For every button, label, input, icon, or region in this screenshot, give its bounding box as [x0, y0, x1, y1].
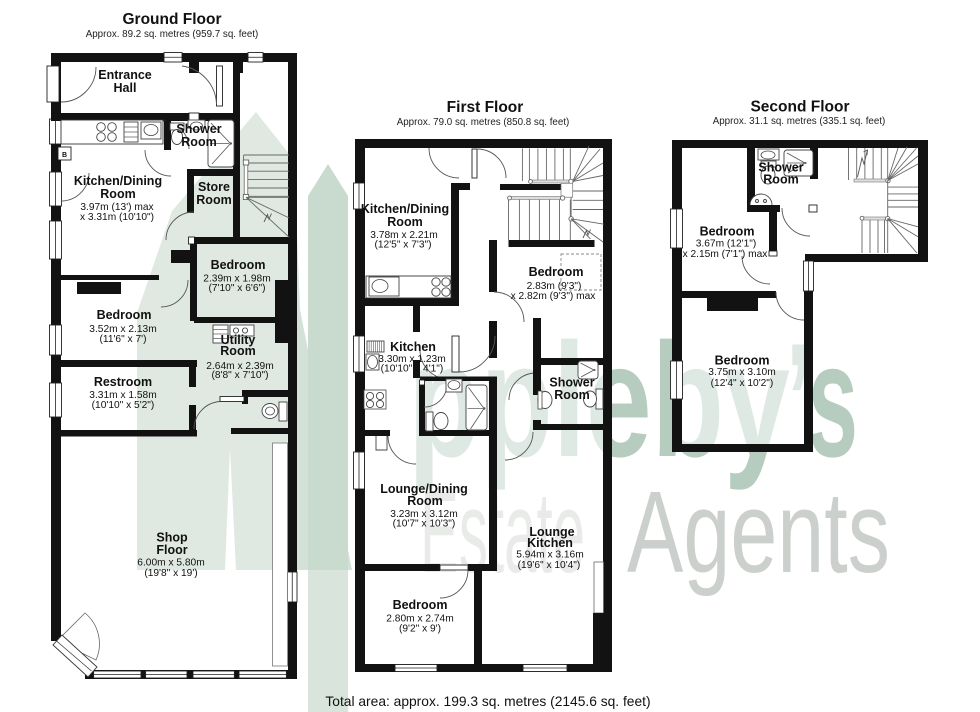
svg-text:Bedroom: Bedroom [529, 265, 584, 279]
svg-text:Kitchen: Kitchen [527, 536, 573, 550]
svg-text:x 2.15m (7'1") max: x 2.15m (7'1") max [683, 249, 768, 260]
svg-text:Shower: Shower [176, 122, 221, 136]
svg-text:Bedroom: Bedroom [97, 308, 152, 322]
svg-text:Bedroom: Bedroom [393, 598, 448, 612]
svg-text:(10'10" x 4'1"): (10'10" x 4'1") [381, 364, 444, 375]
svg-text:(12'5" x 7'3"): (12'5" x 7'3") [375, 240, 432, 251]
svg-text:Approx. 31.1 sq. metres (335.1: Approx. 31.1 sq. metres (335.1 sq. feet) [713, 116, 886, 127]
svg-text:x 2.82m (9'3") max: x 2.82m (9'3") max [511, 291, 596, 302]
svg-text:Entrance: Entrance [98, 68, 152, 82]
svg-text:Room: Room [196, 193, 231, 207]
svg-text:(11'6" x 7'): (11'6" x 7') [100, 334, 147, 345]
svg-text:Restroom: Restroom [94, 375, 152, 389]
svg-text:(8'8" x 7'10"): (8'8" x 7'10") [212, 370, 269, 381]
svg-text:Second Floor: Second Floor [750, 99, 849, 116]
svg-text:Agents: Agents [627, 467, 890, 597]
svg-text:(9'2" x 9'): (9'2" x 9') [399, 624, 441, 635]
svg-text:(7'10" x 6'6"): (7'10" x 6'6") [209, 283, 266, 294]
svg-text:Room: Room [554, 388, 589, 402]
svg-text:First Floor: First Floor [447, 99, 524, 116]
svg-text:Room: Room [387, 215, 422, 229]
svg-text:B: B [62, 152, 67, 159]
svg-text:Room: Room [220, 344, 255, 358]
svg-text:x 3.31m (10'10"): x 3.31m (10'10") [80, 212, 154, 223]
svg-text:Bedroom: Bedroom [211, 258, 266, 272]
svg-text:Hall: Hall [114, 81, 137, 95]
svg-text:Room: Room [181, 135, 216, 149]
svg-text:Room: Room [407, 494, 442, 508]
svg-text:Bedroom: Bedroom [715, 354, 770, 368]
svg-text:Approx. 79.0 sq. metres (850.8: Approx. 79.0 sq. metres (850.8 sq. feet) [397, 117, 570, 128]
svg-text:(12'4" x 10'2"): (12'4" x 10'2") [711, 378, 774, 389]
svg-text:Room: Room [100, 187, 135, 201]
svg-text:Kitchen: Kitchen [390, 340, 436, 354]
svg-text:6.00m x 5.80m: 6.00m x 5.80m [137, 558, 204, 569]
svg-text:(10'7" x 10'3"): (10'7" x 10'3") [393, 519, 456, 530]
svg-text:Total area: approx. 199.3 sq.: Total area: approx. 199.3 sq. metres (21… [325, 694, 650, 709]
svg-text:Approx. 89.2 sq. metres (959.7: Approx. 89.2 sq. metres (959.7 sq. feet) [86, 29, 259, 40]
svg-text:Kitchen/Dining: Kitchen/Dining [361, 202, 449, 216]
svg-text:(19'6" x 10'4"): (19'6" x 10'4") [518, 560, 581, 571]
svg-text:5.94m x 3.16m: 5.94m x 3.16m [516, 550, 583, 561]
svg-text:3.75m x 3.10m: 3.75m x 3.10m [708, 367, 775, 378]
svg-text:Kitchen/Dining: Kitchen/Dining [74, 174, 162, 188]
svg-text:Room: Room [763, 173, 798, 187]
svg-text:Floor: Floor [156, 543, 187, 557]
svg-text:Bedroom: Bedroom [700, 225, 755, 239]
svg-text:(10'10" x 5'2"): (10'10" x 5'2") [92, 400, 155, 411]
svg-text:(19'8" x 19'): (19'8" x 19') [144, 568, 197, 579]
svg-text:Store: Store [198, 180, 230, 194]
svg-text:Ground Floor: Ground Floor [122, 11, 221, 28]
svg-text:3.67m (12'1"): 3.67m (12'1") [696, 239, 757, 250]
